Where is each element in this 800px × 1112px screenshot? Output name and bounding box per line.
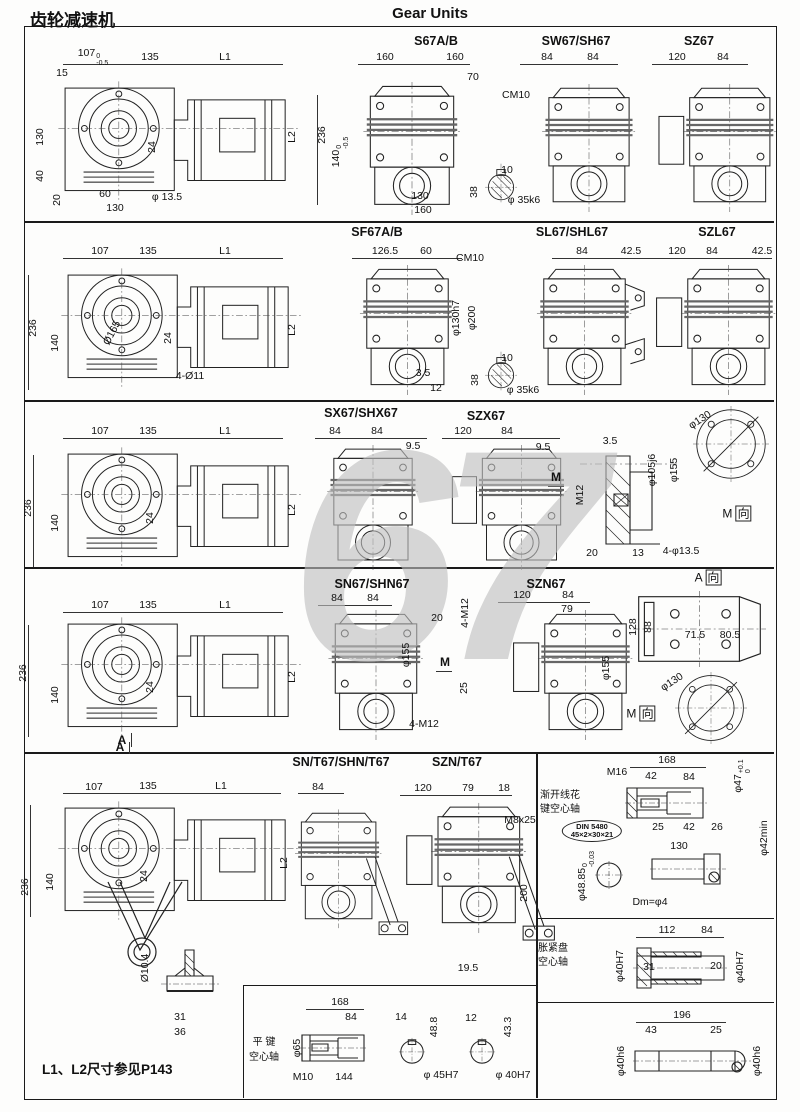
footnote-l1-l2: L1、L2尺寸参见P143: [42, 1058, 173, 1078]
dim-84r: 84: [367, 592, 379, 604]
dim-140-tol: 1400-0.5: [330, 137, 350, 168]
row2-sl67-drawing: [535, 265, 660, 395]
dim-L1: L1: [219, 51, 231, 63]
dim-12: 12: [465, 1012, 477, 1024]
dim-dm: Dm=φ4: [632, 896, 667, 908]
row2-szl67-drawing: [648, 265, 783, 395]
dim-84: 84: [576, 245, 588, 257]
dimension-line: [652, 64, 748, 65]
dim-36: 36: [174, 1026, 186, 1038]
dim-25: 25: [458, 682, 470, 694]
view-arrow-line: [129, 742, 130, 754]
dim-236: 236: [316, 126, 328, 144]
view-arrow-M: M: [551, 470, 561, 484]
row3-gearmotor-drawing: [58, 442, 310, 572]
dim-84r: 84: [371, 425, 383, 437]
dim-m8x25: M8x25: [504, 814, 536, 826]
dim-200: 200: [518, 884, 530, 902]
dim-45h7: φ 45H7: [424, 1069, 459, 1081]
dim-42b: 42: [683, 821, 695, 833]
dimension-line: [318, 605, 392, 606]
dim-24: 24: [144, 681, 156, 693]
dim-84l: 84: [329, 425, 341, 437]
right-sub-divider-2: [536, 1002, 774, 1003]
title-sx67: SX67/SHX67: [324, 406, 398, 420]
catalog-page: 齿轮减速机 Gear Units 67 S67A/B SW67/SH67 SZ6…: [0, 0, 800, 1112]
key-shaft-box-left: [243, 985, 244, 1098]
dim-43: 43: [645, 1024, 657, 1036]
dim-18: 18: [498, 782, 510, 794]
dim-120: 120: [668, 51, 686, 63]
tol-upper: +0.1: [738, 759, 745, 773]
dimension-line: [358, 64, 470, 65]
dim-130: 130: [670, 840, 688, 852]
page-title-cn: 齿轮减速机: [30, 6, 115, 31]
dim-9-5b: 9.5: [536, 441, 551, 453]
tolerance-stack: 0-0.03: [582, 851, 596, 867]
view-arrow-M: M: [440, 655, 450, 669]
dim-20: 20: [586, 547, 598, 559]
dim-4m12-top: 4-M12: [459, 598, 471, 628]
dim-135: 135: [141, 51, 159, 63]
tol-upper: 0: [96, 53, 108, 60]
dim-40h7-right: φ40H7: [734, 951, 746, 983]
dim-71-5: 71.5: [685, 629, 705, 641]
dim-10: 10: [501, 352, 513, 364]
dim-value: 107: [78, 47, 96, 59]
label-shrink-disc-2: 空心轴: [538, 957, 568, 969]
dim-155b: φ155: [600, 656, 612, 680]
dim-12: 12: [430, 382, 442, 394]
tol-upper: 0: [336, 137, 343, 149]
dim-70: 70: [467, 71, 479, 83]
dim-4xO11: 4-Ø11: [176, 370, 204, 382]
dim-42-5: 42.5: [621, 245, 641, 257]
row1-sw67-drawing: [538, 84, 640, 212]
dim-65: φ65: [291, 1039, 303, 1058]
title-szx67: SZX67: [467, 409, 505, 423]
dim-40h6-left: φ40h6: [615, 1046, 627, 1076]
dimension-line: [552, 258, 660, 259]
dim-13: 13: [632, 547, 644, 559]
view-arrow-line: [436, 671, 452, 672]
dim-120: 120: [668, 245, 686, 257]
dim-107: 107: [91, 599, 109, 611]
view-label-A: A 向: [695, 569, 722, 586]
dim-m16: M16: [607, 766, 627, 778]
dim-84: 84: [683, 771, 695, 783]
dim-40h6-right: φ40h6: [751, 1046, 763, 1076]
dim-236: 236: [27, 319, 39, 337]
tol-upper: 0: [582, 851, 589, 867]
dim-38: 38: [469, 374, 481, 386]
row1-gearmotor-drawing: [55, 75, 307, 207]
row5-spline-shaft-drawing: [625, 784, 707, 822]
key-shaft-box-top: [243, 985, 537, 986]
view-label-M: M 向: [626, 705, 655, 722]
dimension-line: [636, 937, 724, 938]
dim-80-5: 80.5: [720, 629, 740, 641]
title-sz67: SZ67: [684, 34, 714, 48]
title-sw67: SW67/SH67: [542, 34, 611, 48]
dim-107: 107: [85, 781, 103, 793]
dim-14: 14: [395, 1011, 407, 1023]
dim-84: 84: [501, 425, 513, 437]
row5-key-shaft-drawing: [300, 1031, 366, 1065]
row5-pin-detail-drawing: [155, 948, 225, 1024]
title-sznt67: SZN/T67: [432, 755, 482, 769]
dim-42-5b: 42.5: [752, 245, 772, 257]
dim-84: 84: [345, 1011, 357, 1023]
dim-84l: 84: [331, 592, 343, 604]
dim-24: 24: [162, 332, 174, 344]
dim-40h7-left: φ40H7: [614, 950, 626, 982]
dim-4m12-bottom: 4-M12: [409, 718, 439, 730]
dim-15: 15: [56, 67, 68, 79]
dim-4x13-5: 4-φ13.5: [663, 545, 700, 557]
title-s67ab: S67A/B: [414, 34, 458, 48]
dim-84: 84: [717, 51, 729, 63]
dim-42a: 42: [645, 770, 657, 782]
dim-107: 107: [91, 245, 109, 257]
right-sub-divider-1: [536, 918, 774, 919]
dimension-line: [30, 805, 31, 917]
dim-128: 128: [627, 618, 639, 636]
dim-cm10: CM10: [502, 89, 530, 101]
row5-spline-shaft-end-drawing: [650, 851, 726, 887]
dim-130-bottom: 130: [411, 190, 429, 202]
dim-L1: L1: [215, 780, 227, 792]
view-dir-char: 向: [705, 570, 721, 586]
dim-43-3: 43.3: [502, 1017, 514, 1037]
view-label-M: M 向: [722, 505, 751, 522]
dim-L2: L2: [286, 504, 298, 516]
dim-84: 84: [562, 589, 574, 601]
dim-38: 38: [468, 186, 480, 198]
dim-236: 236: [19, 878, 31, 896]
dim-L2: L2: [286, 131, 298, 143]
dim-40: 40: [34, 170, 46, 182]
dim-24: 24: [144, 512, 156, 524]
dim-60: 60: [99, 188, 111, 200]
dim-20: 20: [710, 960, 722, 972]
dim-120: 120: [454, 425, 472, 437]
dim-140: 140: [49, 514, 61, 532]
tol-lower: -0.5: [343, 137, 350, 149]
tolerance-stack: +0.10: [738, 759, 752, 773]
title-sf67ab: SF67A/B: [351, 225, 402, 239]
dim-value: φ47: [732, 774, 744, 793]
label-spline-hollow-shaft-1: 渐开线花: [540, 790, 580, 802]
row5-bore-45-drawing: [398, 1037, 426, 1065]
dim-31: 31: [643, 961, 655, 973]
dim-L2: L2: [278, 857, 290, 869]
row4-gearmotor-drawing: [58, 612, 310, 742]
title-sl67: SL67/SHL67: [536, 225, 608, 239]
dim-31: 31: [174, 1011, 186, 1023]
dim-112: 112: [659, 924, 676, 936]
din-spline-spec: 45×2×30×21: [571, 830, 613, 839]
din-spec-bubble: DIN 5480 45×2×30×21: [562, 820, 622, 842]
dim-140: 140: [49, 686, 61, 704]
view-letter: M: [626, 707, 636, 721]
dimension-line: [630, 767, 706, 768]
row4-szn67-drawing: [505, 610, 640, 740]
dimension-line: [352, 258, 462, 259]
tol-lower: -0.03: [589, 851, 596, 867]
dim-84b: 84: [706, 245, 718, 257]
dim-26: 26: [711, 821, 723, 833]
tolerance-stack: 0-0.5: [336, 137, 350, 149]
dim-47-tol: φ47+0.10: [732, 759, 752, 792]
dim-20: 20: [431, 612, 443, 624]
dimension-line: [636, 1022, 726, 1023]
dimension-line: [63, 258, 283, 259]
row-separator-2: [25, 400, 774, 402]
dimension-line: [306, 1009, 364, 1010]
row5-shaft-circle-drawing: [594, 860, 624, 890]
dim-48-85-tol: φ48.850-0.03: [576, 851, 596, 901]
dim-135: 135: [139, 425, 157, 437]
dim-84r: 84: [587, 51, 599, 63]
dimension-line: [63, 793, 281, 794]
dim-3-5: 3.5: [603, 435, 618, 447]
dim-m12: M12: [574, 485, 586, 505]
row5-snt67-drawing: [295, 795, 410, 960]
view-dir-char: 向: [640, 706, 656, 722]
dim-140: 140: [44, 873, 56, 891]
dim-L2: L2: [286, 324, 298, 336]
dim-126-5: 126.5: [372, 245, 398, 257]
dim-10: 10: [501, 164, 513, 176]
view-dir-char: 向: [736, 506, 752, 522]
dim-60: 60: [420, 245, 432, 257]
title-sn67: SN67/SHN67: [334, 577, 409, 591]
tol-lower: 0: [745, 759, 752, 773]
dim-168: 168: [658, 754, 676, 766]
dim-hole-13-5: φ 13.5: [152, 191, 182, 203]
view-arrow-A: A: [116, 740, 125, 754]
dim-84: 84: [312, 781, 324, 793]
dim-3-5: 3.5: [416, 367, 431, 379]
tolerance-stack: 0-0.5: [96, 53, 108, 67]
dim-48-8: 48.8: [428, 1017, 440, 1037]
dim-130b: 130: [106, 202, 124, 214]
dim-155: φ155: [668, 458, 680, 482]
dimension-line: [315, 438, 427, 439]
dim-24: 24: [138, 870, 150, 882]
dimension-line: [442, 438, 560, 439]
label-shrink-disc-1: 胀紧盘: [538, 943, 568, 955]
dim-L1: L1: [219, 245, 231, 257]
row4-mview-flange-drawing: [672, 672, 750, 744]
page-title-en: Gear Units: [392, 5, 468, 22]
row2-sf67-drawing: [350, 265, 465, 395]
dim-L1: L1: [219, 599, 231, 611]
row5-bore-40-drawing: [468, 1037, 496, 1065]
dim-168: 168: [331, 996, 349, 1008]
title-snt67: SN/T67/SHN/T67: [292, 755, 389, 769]
label-key-hollow-shaft-2: 空心轴: [249, 1052, 279, 1064]
dim-144: 144: [335, 1071, 353, 1083]
dim-L1: L1: [219, 425, 231, 437]
dim-value: φ48.85: [576, 868, 588, 901]
label-key-hollow-shaft-1: 平 键: [253, 1037, 276, 1049]
dim-200: φ200: [466, 306, 478, 330]
dim-120: 120: [513, 589, 531, 601]
dim-88: 88: [642, 621, 654, 633]
dim-42min: φ42min: [758, 820, 770, 855]
title-szn67: SZN67: [527, 577, 566, 591]
dim-120: 120: [414, 782, 432, 794]
row5-solid-shaft-drawing: [633, 1043, 751, 1079]
dim-155: φ155: [400, 643, 412, 667]
dimension-line: [498, 602, 590, 603]
dimension-line: [652, 258, 772, 259]
dim-105j6: φ105j6: [646, 454, 658, 487]
dimension-line: [298, 793, 344, 794]
tol-lower: -0.5: [96, 60, 108, 67]
view-letter: M: [722, 507, 732, 521]
dim-40h7: φ 40H7: [496, 1069, 531, 1081]
dim-140: 140: [49, 334, 61, 352]
dim-L2: L2: [286, 671, 298, 683]
dim-25: 25: [652, 821, 664, 833]
dim-19-5: 19.5: [458, 962, 478, 974]
dim-160-bottom: 160: [414, 204, 432, 216]
dim-135: 135: [139, 599, 157, 611]
dim-cm10: CM10: [456, 252, 484, 264]
dimension-line: [520, 64, 618, 65]
dim-196: 196: [673, 1009, 691, 1021]
view-letter: A: [695, 571, 702, 585]
dimension-line: [317, 95, 318, 205]
dim-107-tol: 1070-0.5: [78, 47, 109, 67]
dim-135: 135: [139, 780, 157, 792]
dim-160r: 160: [446, 51, 464, 63]
dim-m10: M10: [293, 1071, 313, 1083]
row1-sz67-drawing: [652, 84, 782, 212]
dim-24: 24: [146, 141, 158, 153]
dim-236: 236: [22, 499, 34, 517]
row-separator-1: [25, 221, 774, 223]
dim-pin-10-4: Ø10.4: [139, 954, 151, 983]
dim-35k6: φ 35k6: [507, 384, 540, 396]
dim-135: 135: [139, 245, 157, 257]
label-spline-hollow-shaft-2: 键空心轴: [540, 804, 580, 816]
dim-9-5: 9.5: [406, 440, 421, 452]
dim-130h7: φ130h7: [450, 300, 462, 336]
title-szl67: SZL67: [698, 225, 736, 239]
dim-25: 25: [710, 1024, 722, 1036]
dim-value: 140: [330, 150, 342, 168]
dim-236: 236: [17, 664, 29, 682]
dim-130: 130: [34, 128, 46, 146]
dim-160l: 160: [376, 51, 394, 63]
row3-szx67-drawing: [445, 445, 573, 570]
dim-79: 79: [561, 603, 573, 615]
dim-107: 107: [91, 425, 109, 437]
row3-sx67-drawing: [322, 445, 424, 570]
dim-84l: 84: [541, 51, 553, 63]
dim-20: 20: [51, 194, 63, 206]
dimension-line: [63, 438, 283, 439]
dim-79: 79: [462, 782, 474, 794]
dim-35k6: φ 35k6: [508, 194, 541, 206]
dim-84: 84: [701, 924, 713, 936]
